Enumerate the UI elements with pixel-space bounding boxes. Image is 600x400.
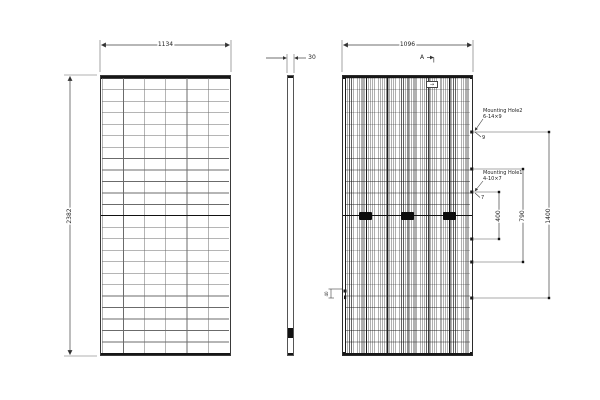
mounting-hole1-spec: 4-10×7 bbox=[483, 176, 522, 182]
side-thickness-dimension: 30 bbox=[307, 55, 317, 61]
engineering-drawing-solar-module: → bbox=[0, 0, 600, 400]
grounding-dimension: 40 bbox=[325, 290, 329, 297]
side-extension-lines bbox=[287, 54, 294, 73]
front-height-dimension: 2382 bbox=[67, 207, 73, 224]
mounting-hole-marks bbox=[470, 131, 473, 300]
mounting-hole2-spec: 6-14×9 bbox=[483, 114, 522, 120]
hole-spacing-inner-dimension: 400 bbox=[496, 209, 502, 222]
mounting-hole2-annotation: Mounting Hole2 6-14×9 bbox=[483, 108, 522, 120]
mounting-hole1-annotation: Mounting Hole1 4-10×7 bbox=[483, 170, 522, 182]
rear-width-dimension: 1096 bbox=[399, 42, 416, 48]
section-a-elbow bbox=[427, 58, 434, 63]
section-a-label: A bbox=[419, 55, 425, 61]
grounding-dim-lines bbox=[329, 289, 343, 298]
hole-spacing-middle-dimension: 790 bbox=[520, 209, 526, 222]
hole-spacing-outer-dimension: 1400 bbox=[546, 207, 552, 224]
hole-dim-connectors bbox=[474, 132, 549, 298]
front-extension-lines bbox=[64, 40, 231, 356]
front-width-dimension: 1134 bbox=[157, 42, 174, 48]
mounting-hole1-callout: 7 bbox=[481, 195, 484, 201]
annotation-leaders bbox=[475, 119, 483, 198]
dimension-linework bbox=[0, 0, 600, 400]
mounting-hole2-callout: 9 bbox=[482, 135, 485, 141]
front-dimension-lines bbox=[70, 45, 230, 355]
grounding-hole-marker bbox=[344, 290, 347, 300]
